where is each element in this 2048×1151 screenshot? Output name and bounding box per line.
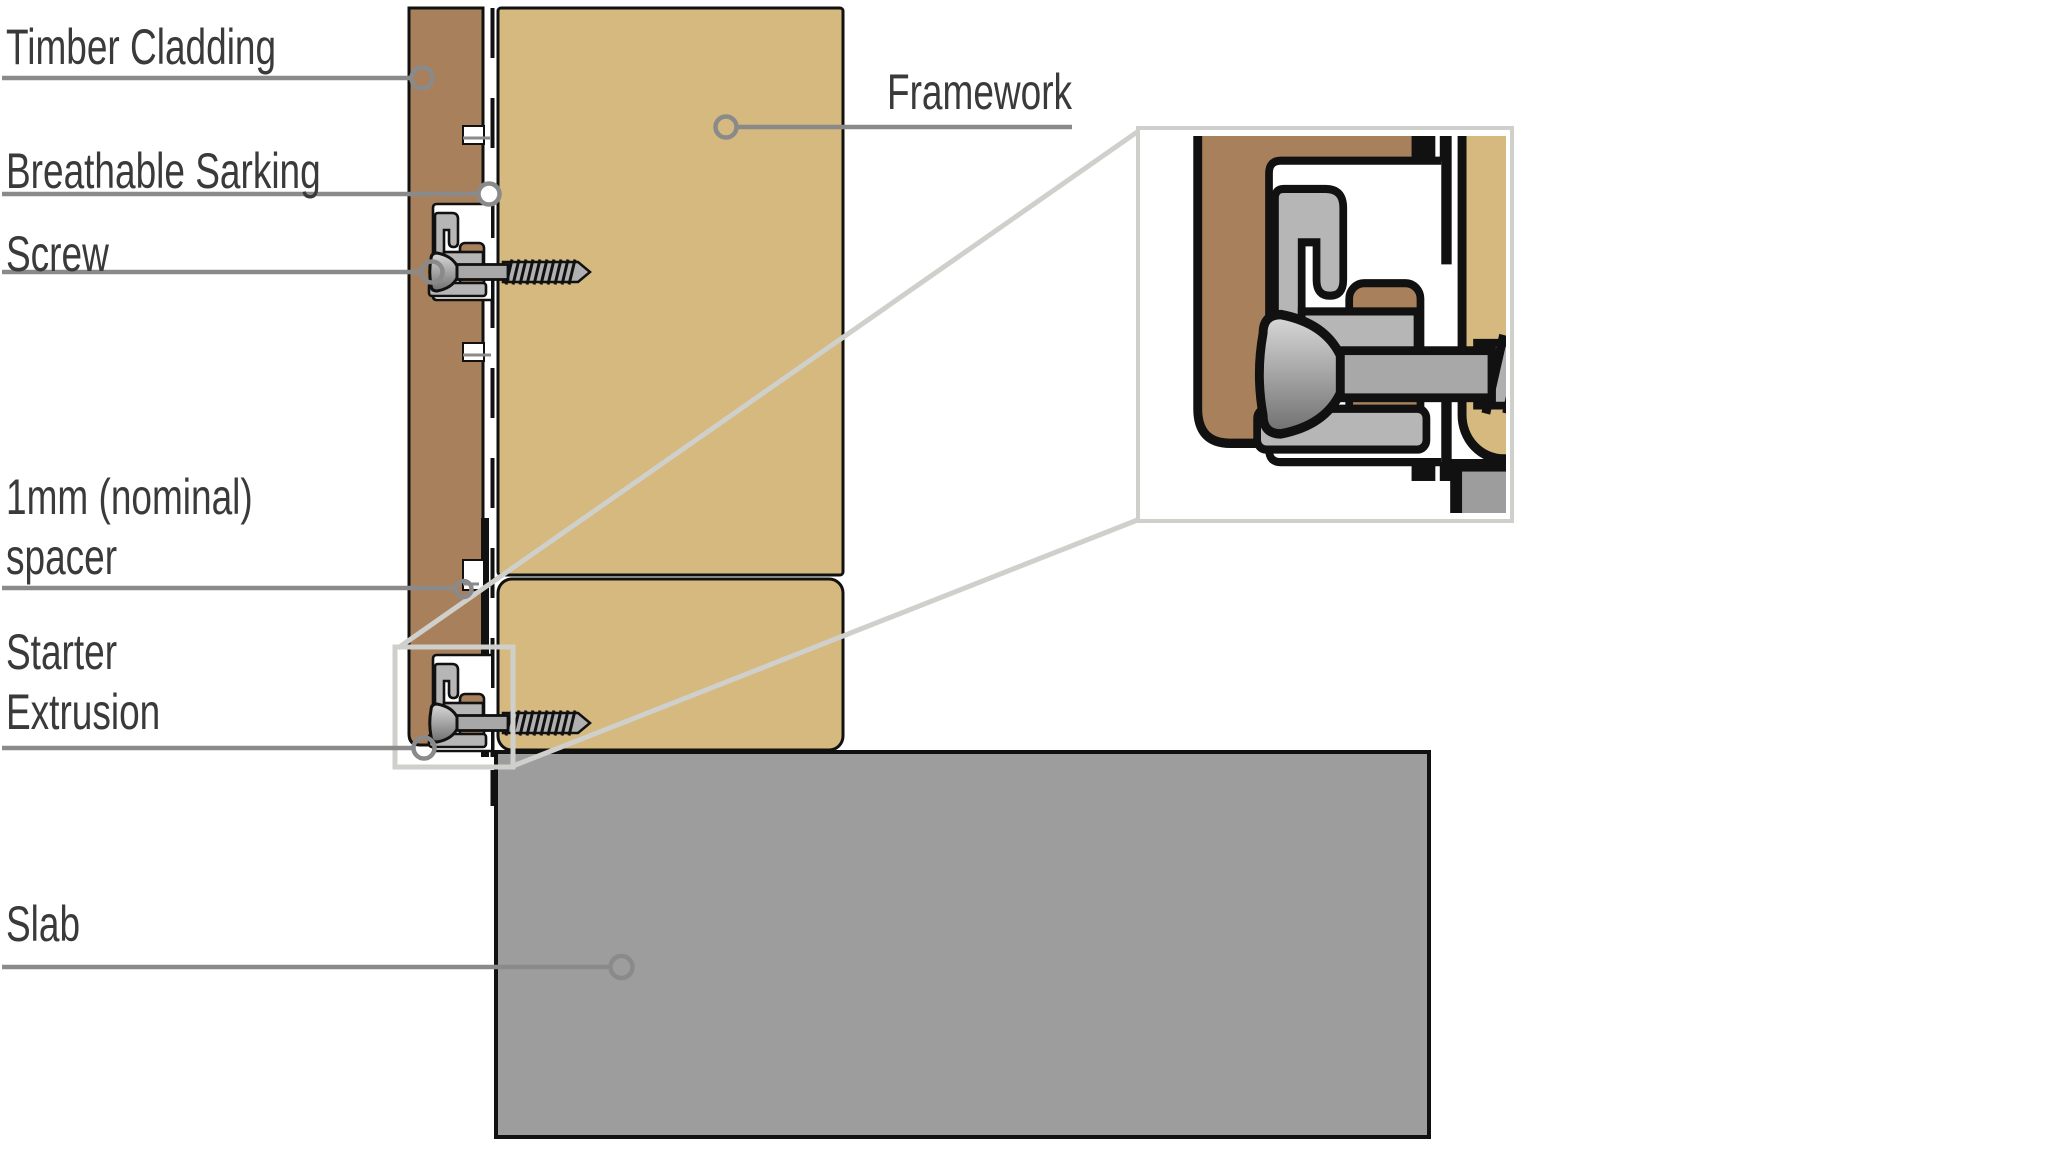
label-spacer: 1mm (nominal) spacer: [6, 467, 253, 587]
framework-stud: [498, 8, 843, 575]
label-starter-extrusion: Starter Extrusion: [6, 622, 160, 742]
slab-block: [496, 752, 1429, 1137]
label-timber-cladding: Timber Cladding: [6, 17, 276, 77]
label-slab: Slab: [6, 894, 80, 954]
leader-ring-breathable-sarking: [479, 184, 500, 205]
label-framework: Framework: [887, 62, 1072, 122]
label-breathable-sarking: Breathable Sarking: [6, 141, 321, 201]
label-screw: Screw: [6, 224, 109, 284]
diagram-canvas: Timber Cladding Breathable Sarking Screw…: [0, 0, 2048, 1151]
